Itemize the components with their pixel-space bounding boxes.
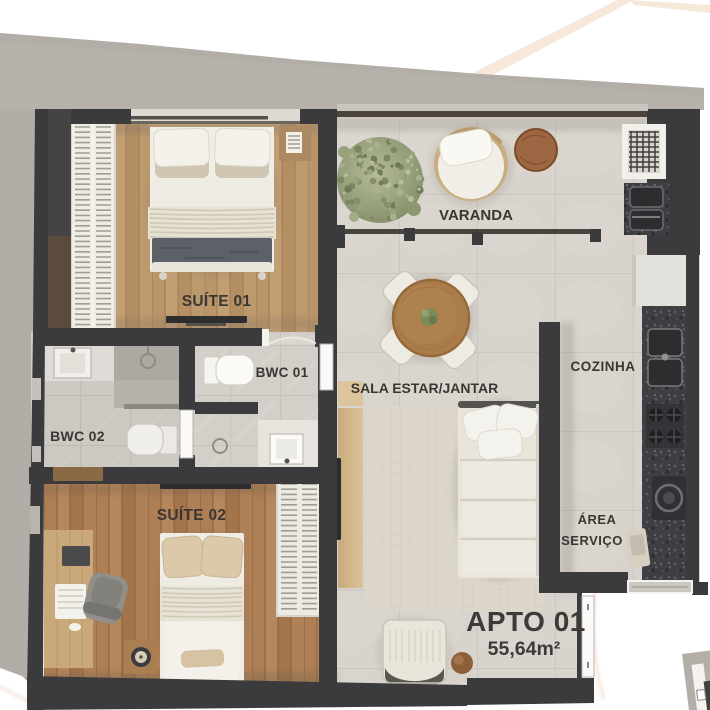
- svg-text:VARANDA: VARANDA: [439, 207, 513, 224]
- svg-text:SERVIÇO: SERVIÇO: [561, 533, 623, 548]
- svg-text:SALA ESTAR/JANTAR: SALA ESTAR/JANTAR: [351, 380, 499, 396]
- svg-text:APTO 01: APTO 01: [466, 606, 586, 637]
- svg-text:SUÍTE 01: SUÍTE 01: [182, 293, 252, 310]
- svg-text:COZINHA: COZINHA: [571, 359, 636, 374]
- svg-text:BWC 02: BWC 02: [50, 428, 105, 444]
- svg-text:BWC 01: BWC 01: [256, 365, 309, 380]
- svg-text:SUÍTE 02: SUÍTE 02: [157, 507, 227, 524]
- svg-text:ÁREA: ÁREA: [578, 512, 617, 527]
- svg-text:55,64m²: 55,64m²: [488, 638, 561, 660]
